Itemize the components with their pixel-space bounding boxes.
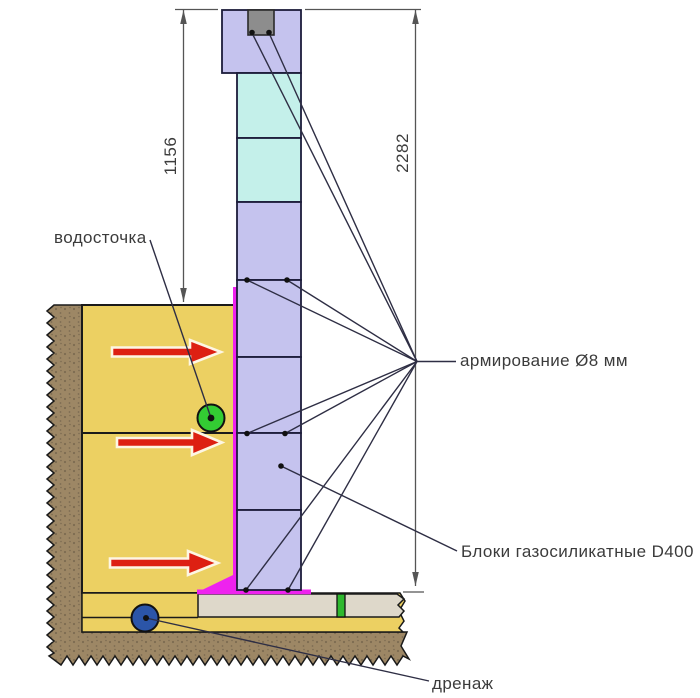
- downspout-anchor-dot: [208, 415, 215, 422]
- reinforcement-dot: [244, 277, 250, 283]
- wall-section-diagram: водосточка армирование Ø8 мм Блоки газос…: [0, 0, 700, 698]
- reinforcement-dot: [244, 431, 250, 437]
- reinforcement-dot: [284, 277, 290, 283]
- diagram-geometry: [0, 0, 700, 698]
- reinforcement-dot: [266, 30, 272, 36]
- wall-block: [237, 202, 301, 280]
- dim-arrow: [412, 572, 419, 586]
- label-reinforcement: армирование Ø8 мм: [460, 351, 628, 371]
- reinforcement-dot: [243, 587, 249, 593]
- label-downspout: водосточка: [54, 228, 147, 248]
- dim-arrow: [412, 10, 419, 24]
- wall-block: [237, 357, 301, 433]
- label-blocks: Блоки газосиликатные D400: [461, 542, 694, 562]
- dim-text-2282: 2282: [393, 121, 413, 185]
- dim-arrow: [180, 10, 187, 24]
- wall-block: [237, 510, 301, 590]
- reinforcement-dot: [249, 30, 255, 36]
- dpc-green-strip: [337, 594, 345, 617]
- reinforcement-ray: [287, 280, 417, 362]
- wall-block: [237, 280, 301, 357]
- reinforcement-dot: [282, 431, 288, 437]
- dim-text-1156: 1156: [161, 124, 181, 188]
- wall-block: [237, 138, 301, 202]
- label-drainage: дренаж: [432, 674, 493, 694]
- reinforcement-dot: [285, 587, 291, 593]
- drainage-anchor-dot: [143, 615, 149, 621]
- reinforcement-ray: [288, 362, 417, 591]
- dim-arrow: [180, 288, 187, 302]
- blocks-anchor-dot: [278, 463, 284, 469]
- foundation-slab: [198, 594, 404, 617]
